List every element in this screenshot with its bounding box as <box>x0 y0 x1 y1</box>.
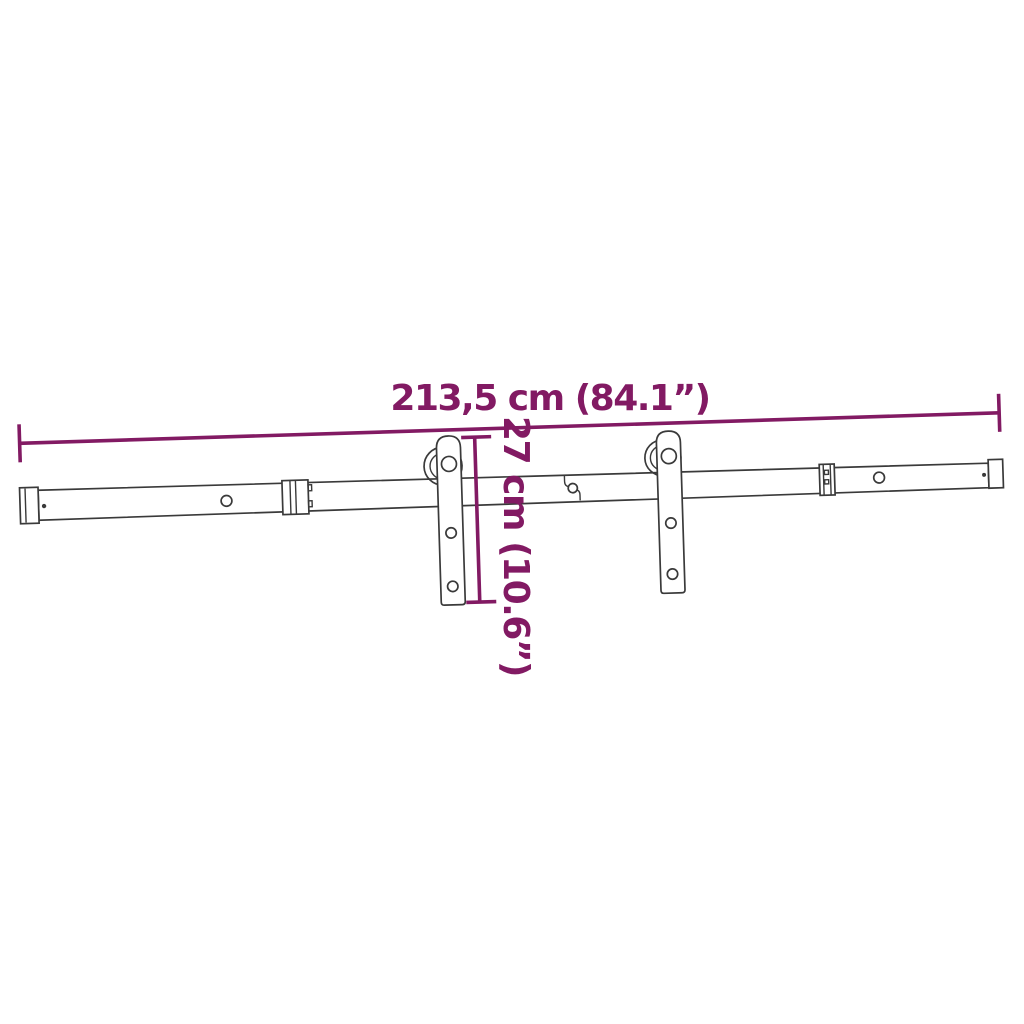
rail-mounting-hole-right <box>874 472 885 483</box>
rail-end-stop-right <box>988 459 1003 488</box>
vertical-dimension-label: 27 cm (10.6”) <box>495 416 536 676</box>
rail-connector-sleeve-left <box>282 480 313 515</box>
dimension-tick-left <box>19 424 20 462</box>
dimension-cap-bottom <box>466 602 496 603</box>
strap-hole-left-1 <box>446 528 457 539</box>
rail-mounting-hole-left <box>221 495 232 506</box>
vertical-dimension-line <box>461 437 496 603</box>
axle-bolt-right <box>661 448 676 463</box>
technical-drawing: 213,5 cm (84.1”) 27 cm (10.6”) <box>0 0 1024 1024</box>
strap-hole-left-2 <box>447 581 458 592</box>
horizontal-dimension-label: 213,5 cm (84.1”) <box>390 378 709 419</box>
strap-hole-right-2 <box>667 569 678 580</box>
strap-hole-right-1 <box>666 518 677 529</box>
rail-end-stop-left <box>20 487 40 524</box>
rail-connector-clamp-right <box>819 464 835 495</box>
dimension-tick-right <box>999 394 1000 432</box>
product-diagram: 213,5 cm (84.1”) 27 cm (10.6”) <box>0 0 1024 1024</box>
dimension-cap-top <box>461 437 491 438</box>
axle-bolt-left <box>441 456 456 471</box>
